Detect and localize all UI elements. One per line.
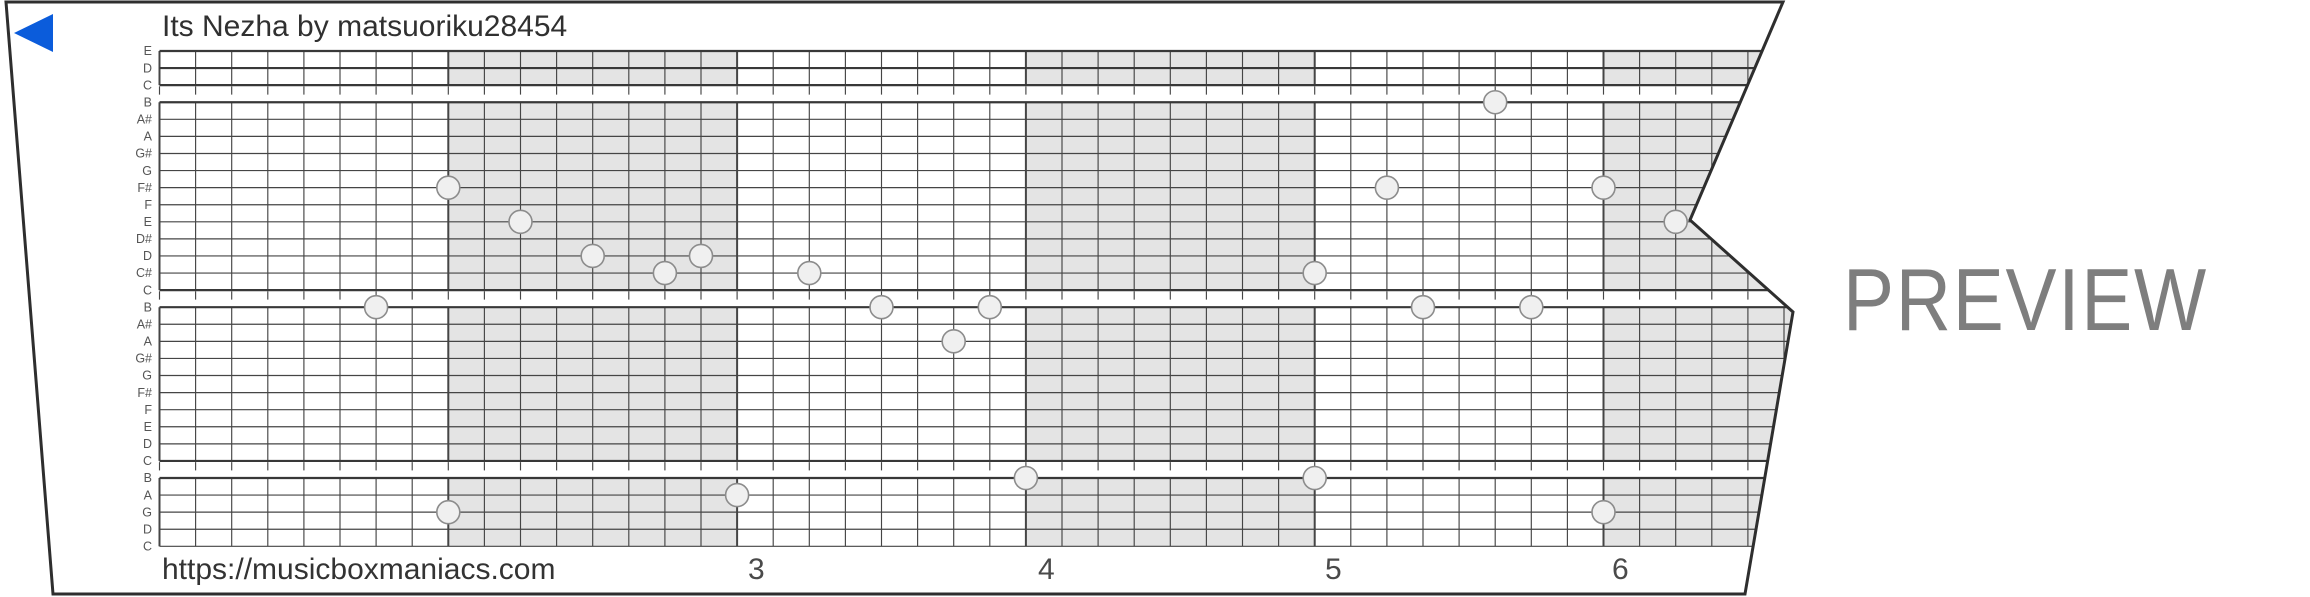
note-circle (365, 296, 388, 319)
note-circle (509, 210, 532, 233)
row-label: C (143, 78, 152, 92)
note-circle (942, 330, 965, 353)
note-circle (1375, 176, 1398, 199)
row-label: A (144, 130, 153, 144)
note-circle (726, 484, 749, 507)
note-circle (690, 244, 713, 267)
page-title: Its Nezha by matsuoriku28454 (162, 10, 567, 43)
row-label: A (144, 335, 153, 349)
note-circle (1592, 176, 1615, 199)
note-circle (1520, 296, 1543, 319)
row-label: F (144, 403, 152, 417)
note-circle (1484, 91, 1507, 114)
note-circle (870, 296, 893, 319)
site-url[interactable]: https://musicboxmaniacs.com (162, 553, 555, 586)
row-label: G (142, 369, 152, 383)
row-label: D (143, 61, 152, 75)
row-label: D (143, 522, 152, 536)
row-label: A# (137, 317, 152, 331)
note-circle (581, 244, 604, 267)
row-label: B (144, 300, 152, 314)
row-label: E (144, 44, 152, 58)
row-label: B (144, 95, 152, 109)
row-label: E (144, 420, 152, 434)
measure-number: 4 (1038, 553, 1055, 586)
note-circle (437, 501, 460, 524)
row-label: B (144, 471, 152, 485)
note-circle (1014, 467, 1037, 490)
row-label: D# (136, 232, 152, 246)
measure-number: 6 (1612, 553, 1629, 586)
row-label: F# (137, 181, 152, 195)
row-label: G# (135, 352, 152, 366)
note-circle (437, 176, 460, 199)
row-label: D (143, 437, 152, 451)
note-circle (1412, 296, 1435, 319)
row-label: E (144, 215, 152, 229)
row-label: A (144, 488, 153, 502)
row-label: F# (137, 386, 152, 400)
row-label: G (142, 164, 152, 178)
note-circle (1303, 467, 1326, 490)
row-label: C# (136, 266, 152, 280)
row-label: C (143, 283, 152, 297)
measure-number: 5 (1325, 553, 1342, 586)
note-circle (1664, 210, 1687, 233)
strip-canvas: Its Nezha by matsuoriku28454 EDCBA#AG#GF… (0, 0, 2310, 597)
row-label: F (144, 198, 152, 212)
row-label: D (143, 249, 152, 263)
row-label: C (143, 454, 152, 468)
row-label: C (143, 540, 152, 554)
preview-watermark: PREVIEW (1843, 250, 2208, 349)
row-label: G (142, 505, 152, 519)
note-circle (798, 262, 821, 285)
note-circle (653, 262, 676, 285)
music-strip-preview: Its Nezha by matsuoriku28454 EDCBA#AG#GF… (0, 0, 2310, 597)
note-circle (1592, 501, 1615, 524)
row-label: A# (137, 113, 152, 127)
note-circle (1303, 262, 1326, 285)
measure-number: 3 (748, 553, 765, 586)
note-circle (978, 296, 1001, 319)
row-label: G# (135, 147, 152, 161)
